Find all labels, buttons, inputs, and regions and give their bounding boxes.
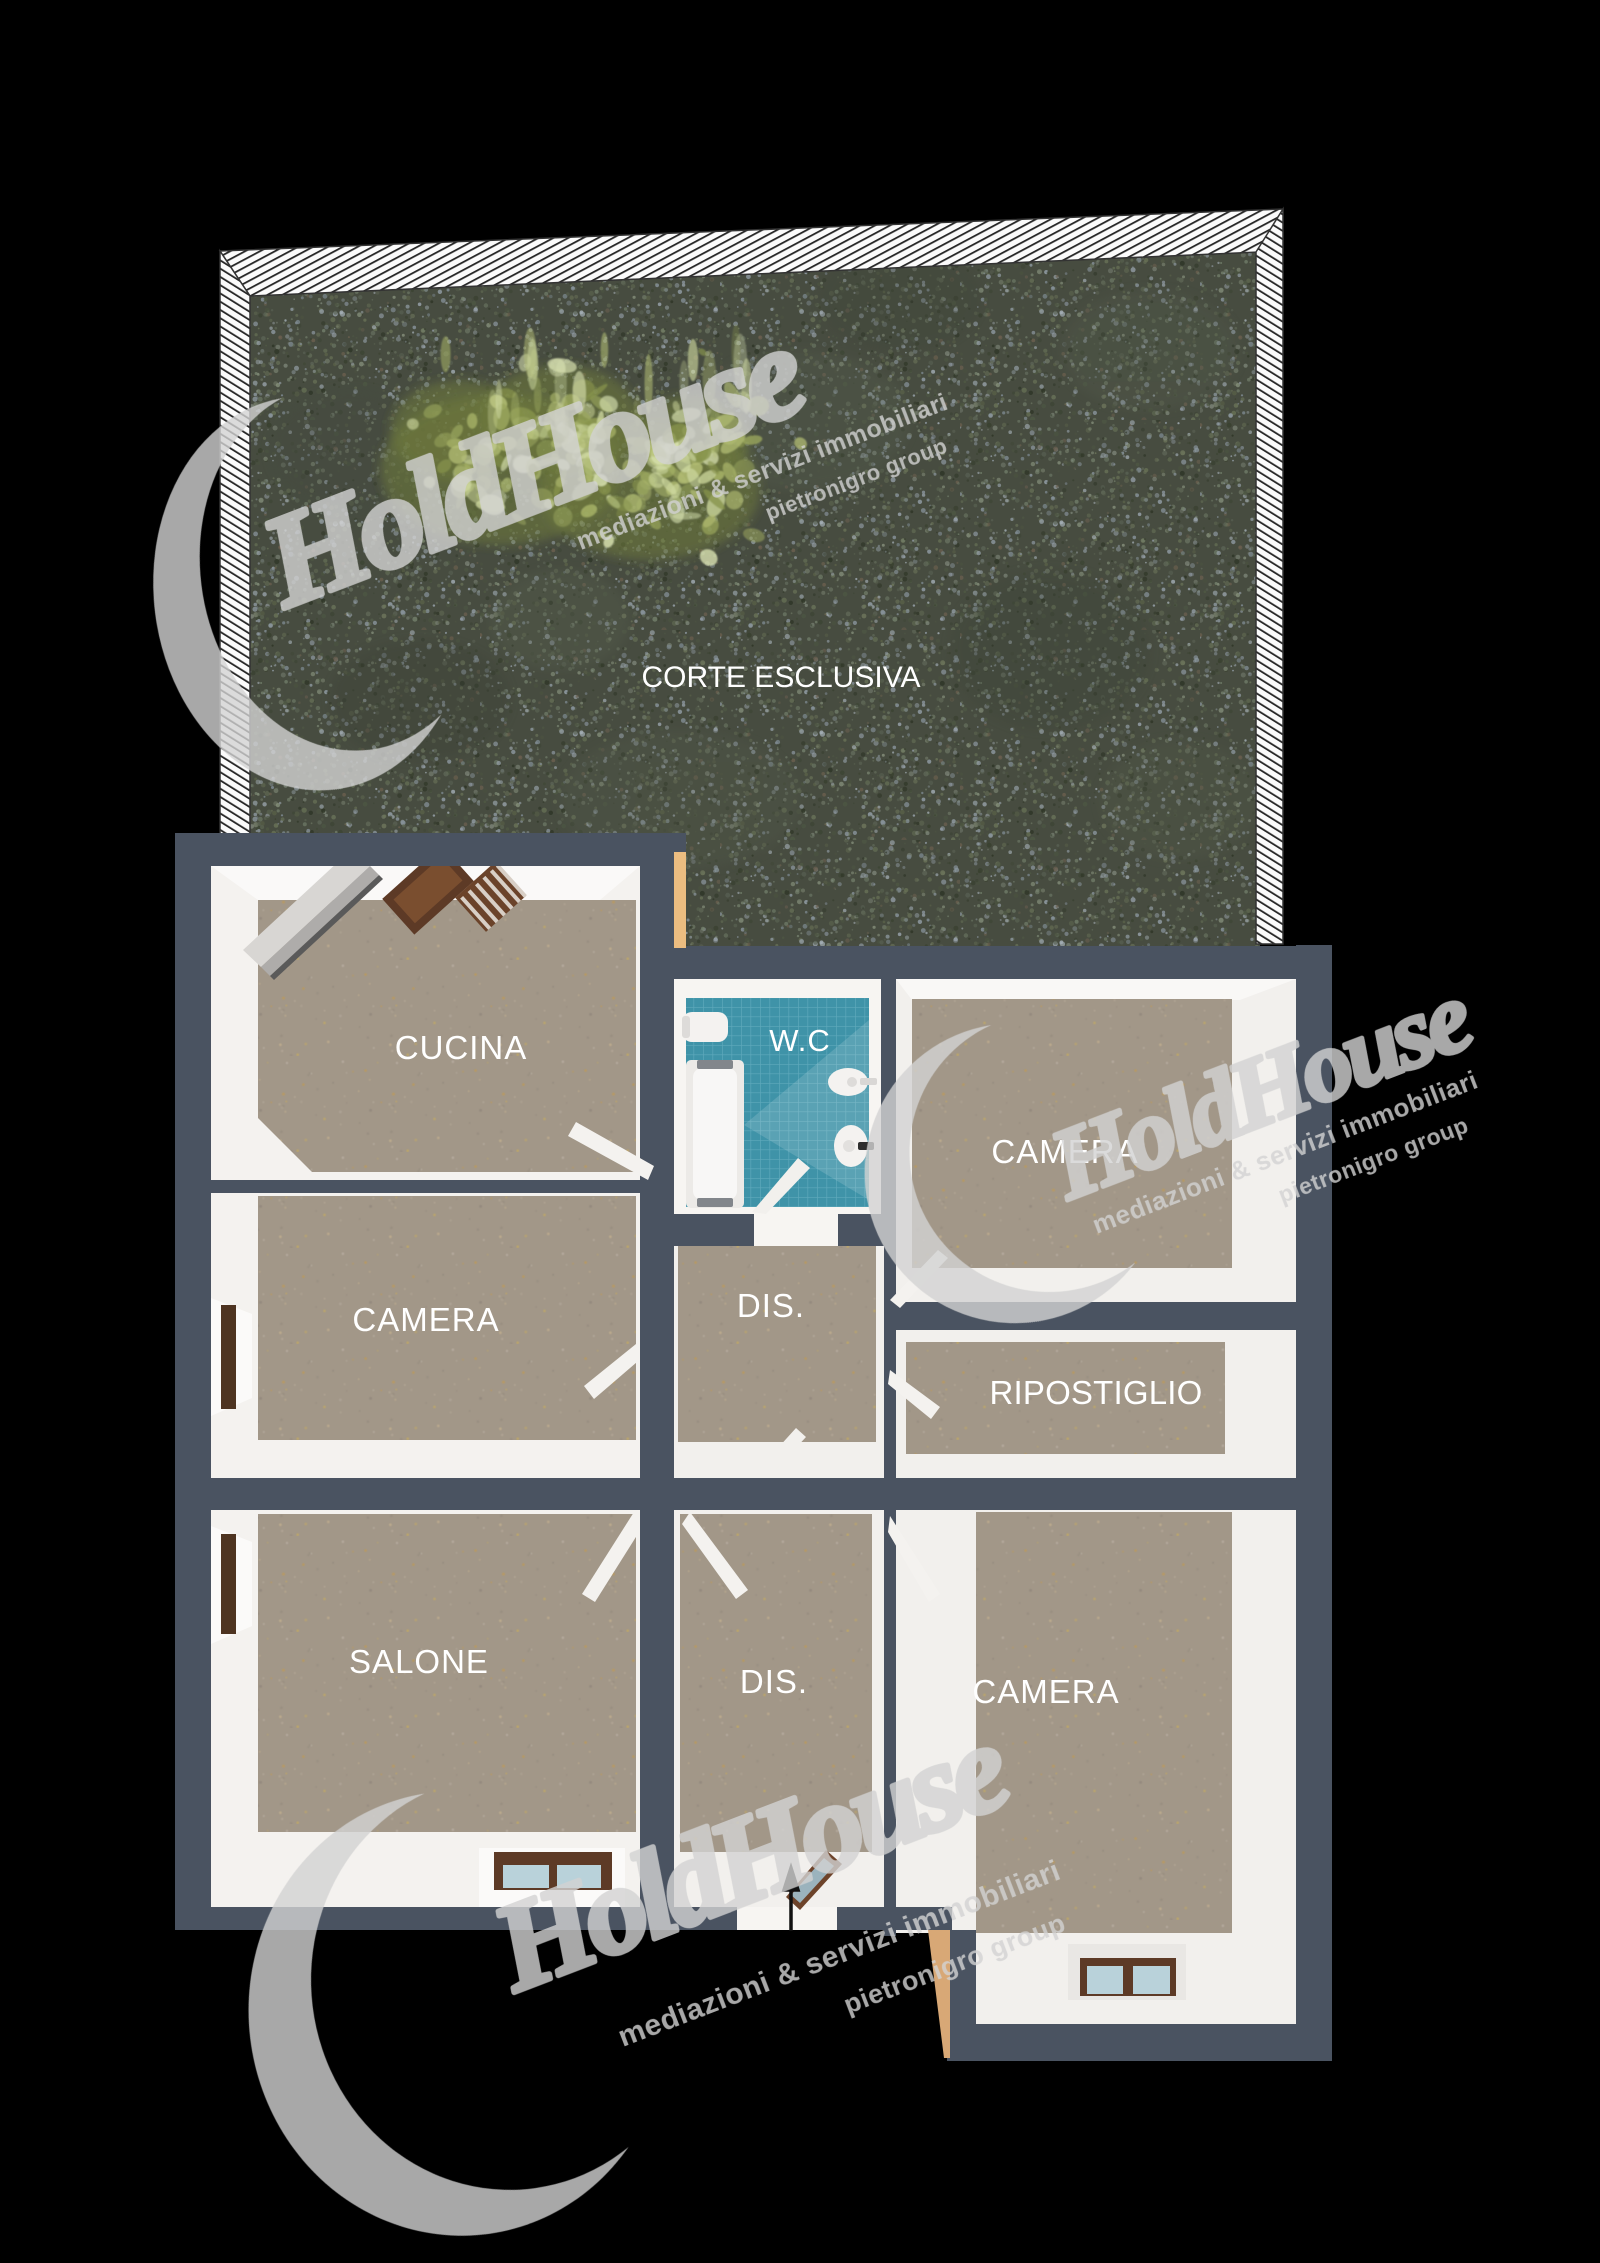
svg-text:CAMERA: CAMERA [352,1301,499,1338]
svg-text:CORTE ESCLUSIVA: CORTE ESCLUSIVA [642,661,921,694]
svg-text:CUCINA: CUCINA [395,1029,528,1066]
svg-text:DIS.: DIS. [737,1287,805,1324]
svg-text:SALONE: SALONE [349,1643,489,1680]
svg-text:DIS.: DIS. [740,1663,808,1700]
svg-text:RIPOSTIGLIO: RIPOSTIGLIO [989,1374,1202,1411]
svg-text:W.C: W.C [769,1023,831,1058]
svg-text:CAMERA: CAMERA [972,1673,1119,1710]
